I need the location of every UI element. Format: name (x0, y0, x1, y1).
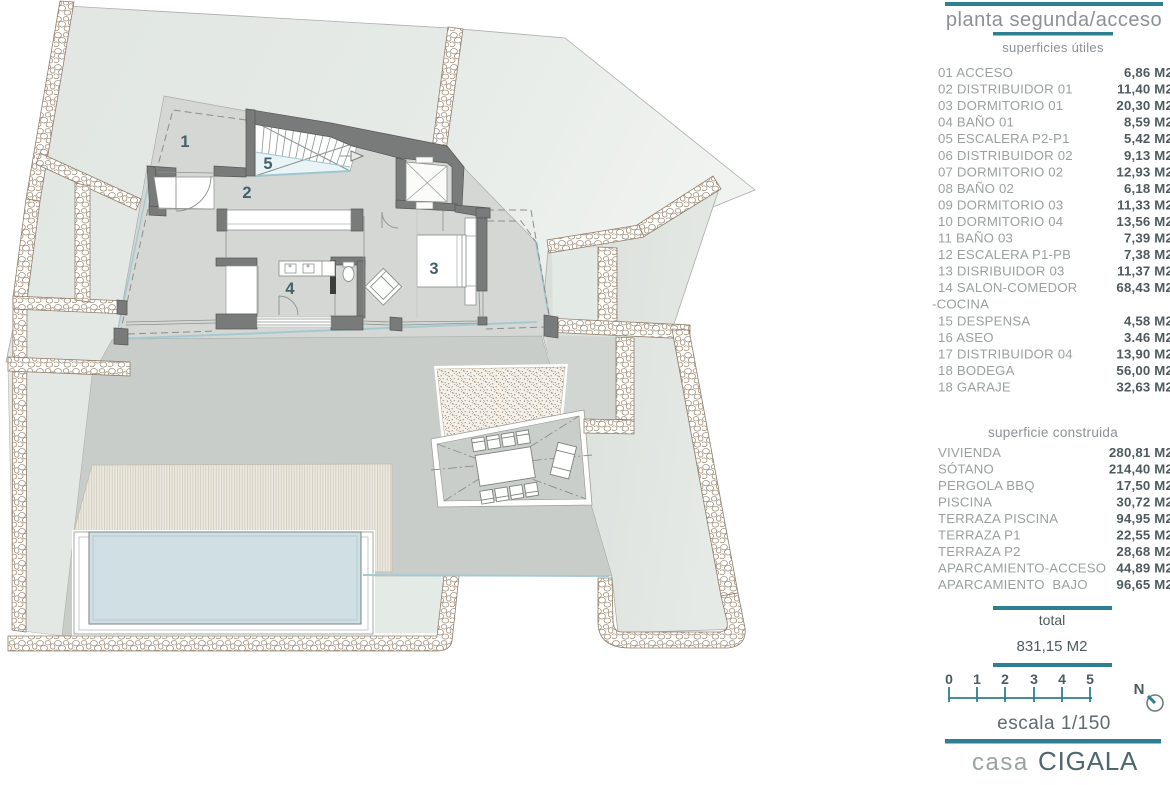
svg-text:4: 4 (1058, 671, 1066, 687)
svg-text:30,72 M2: 30,72 M2 (1116, 495, 1170, 510)
svg-text:TERRAZA P2: TERRAZA P2 (938, 544, 1021, 559)
svg-text:10 DORMITORIO 04: 10 DORMITORIO 04 (938, 214, 1063, 229)
svg-text:18 GARAJE: 18 GARAJE (938, 380, 1011, 395)
svg-text:3: 3 (429, 260, 438, 278)
svg-text:6,86 M2: 6,86 M2 (1124, 65, 1170, 80)
svg-text:13,56 M2: 13,56 M2 (1116, 214, 1170, 229)
svg-text:44,89 M2: 44,89 M2 (1116, 561, 1170, 576)
svg-text:2: 2 (1001, 671, 1009, 687)
svg-text:5: 5 (263, 155, 272, 173)
svg-text:11 BAÑO 03: 11 BAÑO 03 (938, 231, 1013, 246)
svg-text:20,30 M2: 20,30 M2 (1116, 98, 1170, 113)
svg-text:4,58 M2: 4,58 M2 (1124, 313, 1170, 328)
svg-text:4: 4 (285, 280, 295, 298)
svg-text:5,42 M2: 5,42 M2 (1124, 131, 1170, 146)
svg-text:08 BAÑO 02: 08 BAÑO 02 (938, 181, 1014, 196)
svg-text:22,55 M2: 22,55 M2 (1116, 528, 1170, 543)
svg-text:TERRAZA P1: TERRAZA P1 (938, 528, 1021, 543)
svg-text:16 ASEO: 16 ASEO (938, 330, 994, 345)
svg-text:3: 3 (1030, 671, 1038, 687)
svg-text:PERGOLA BBQ: PERGOLA BBQ (938, 478, 1035, 493)
svg-text:12,93 M2: 12,93 M2 (1116, 164, 1170, 179)
svg-text:7,39 M2: 7,39 M2 (1124, 231, 1170, 246)
svg-text:94,95 M2: 94,95 M2 (1116, 511, 1170, 526)
svg-text:3.46 M2: 3.46 M2 (1124, 330, 1170, 345)
svg-text:32,63 M2: 32,63 M2 (1116, 380, 1170, 395)
svg-text:planta segunda/acceso: planta segunda/acceso (946, 9, 1162, 31)
svg-text:96,65 M2: 96,65 M2 (1116, 577, 1170, 592)
svg-text:CIGALA: CIGALA (1038, 746, 1138, 776)
svg-text:06 DISTRIBUIDOR 02: 06 DISTRIBUIDOR 02 (938, 148, 1073, 163)
svg-text:04 BAÑO 01: 04 BAÑO 01 (938, 115, 1014, 130)
svg-text:01 ACCESO: 01 ACCESO (938, 65, 1013, 80)
svg-text:11,37 M2: 11,37 M2 (1117, 264, 1170, 279)
svg-text:VIVIENDA: VIVIENDA (938, 445, 1001, 460)
svg-text:214,40 M2: 214,40 M2 (1109, 462, 1170, 477)
svg-text:09 DORMITORIO 03: 09 DORMITORIO 03 (938, 197, 1063, 212)
svg-text:7,38 M2: 7,38 M2 (1124, 247, 1170, 262)
svg-text:TERRAZA PISCINA: TERRAZA PISCINA (938, 511, 1058, 526)
svg-text:03 DORMITORIO 01: 03 DORMITORIO 01 (938, 98, 1063, 113)
svg-text:superficies útiles: superficies útiles (1002, 40, 1104, 55)
svg-text:APARCAMIENTO-ACCESO: APARCAMIENTO-ACCESO (938, 561, 1106, 576)
svg-text:68,43 M2: 68,43 M2 (1116, 280, 1170, 295)
svg-text:12 ESCALERA P1-PB: 12 ESCALERA P1-PB (938, 247, 1071, 262)
svg-text:1: 1 (973, 671, 981, 687)
svg-text:SÓTANO: SÓTANO (938, 462, 994, 477)
svg-text:5: 5 (1086, 671, 1094, 687)
svg-text:11,40 M2: 11,40 M2 (1117, 82, 1170, 97)
svg-text:escala 1/150: escala 1/150 (997, 713, 1111, 734)
svg-text:28,68 M2: 28,68 M2 (1116, 544, 1170, 559)
svg-text:PISCINA: PISCINA (938, 495, 992, 510)
svg-text:9,13 M2: 9,13 M2 (1124, 148, 1170, 163)
svg-text:14 SALON-COMEDOR: 14 SALON-COMEDOR (938, 280, 1078, 295)
svg-text:15 DESPENSA: 15 DESPENSA (938, 313, 1030, 328)
svg-text:6,18 M2: 6,18 M2 (1124, 181, 1170, 196)
svg-text:18 BODEGA: 18 BODEGA (938, 363, 1015, 378)
svg-text:07 DORMITORIO 02: 07 DORMITORIO 02 (938, 164, 1063, 179)
svg-text:280,81 M2: 280,81 M2 (1109, 445, 1170, 460)
svg-text:-COCINA: -COCINA (932, 297, 989, 312)
svg-text:17 DISTRIBUIDOR 04: 17 DISTRIBUIDOR 04 (938, 346, 1073, 361)
svg-text:superficie construida: superficie construida (988, 425, 1118, 440)
svg-text:0: 0 (945, 671, 953, 687)
svg-text:2: 2 (242, 184, 251, 202)
svg-text:N: N (1134, 681, 1145, 698)
svg-text:17,50 M2: 17,50 M2 (1116, 478, 1170, 493)
svg-text:8,59 M2: 8,59 M2 (1124, 115, 1170, 130)
svg-text:11,33 M2: 11,33 M2 (1117, 197, 1170, 212)
svg-text:13 DISRIBUIDOR 03: 13 DISRIBUIDOR 03 (938, 264, 1065, 279)
svg-text:casa: casa (972, 749, 1029, 776)
svg-text:1: 1 (180, 133, 189, 151)
svg-text:02 DISTRIBUIDOR 01: 02 DISTRIBUIDOR 01 (938, 82, 1073, 97)
svg-text:total: total (1039, 612, 1065, 628)
svg-text:831,15 M2: 831,15 M2 (1017, 638, 1088, 655)
svg-text:56,00 M2: 56,00 M2 (1116, 363, 1170, 378)
svg-text:13,90 M2: 13,90 M2 (1116, 346, 1170, 361)
svg-text:APARCAMIENTO BAJO: APARCAMIENTO BAJO (938, 577, 1088, 592)
svg-text:05 ESCALERA P2-P1: 05 ESCALERA P2-P1 (938, 131, 1070, 146)
